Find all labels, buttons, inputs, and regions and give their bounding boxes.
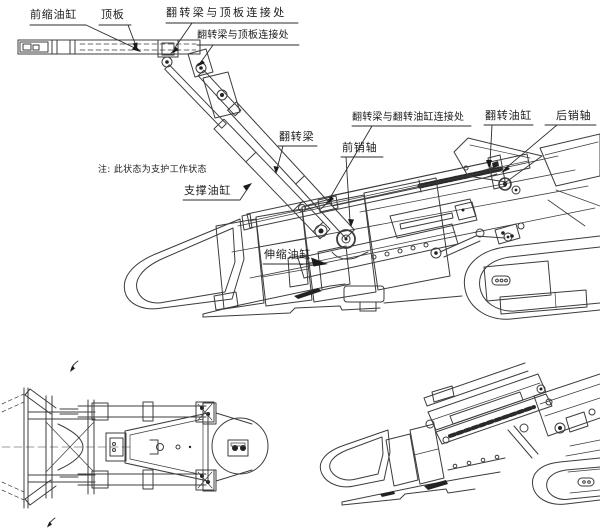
label-flip-beam-top-joint-1: 翻转梁与顶板连接处 [166,7,287,19]
folded-boom [424,363,552,444]
label-rear-pin: 后销轴 [556,110,591,122]
label-front-retract-cylinder: 前缩油缸 [30,9,77,21]
label-state-note: 注: 此状态为支护工作状态 [98,166,207,176]
folded-neck [386,424,444,486]
drawing-linework [0,0,600,528]
label-telescopic-cylinder: 伸缩油缸 [264,249,311,261]
main-view [18,40,600,319]
label-flip-beam-top-joint-2: 翻转梁与顶板连接处 [197,30,289,41]
top-plate-beam [18,40,240,118]
leader-lines [30,23,596,267]
label-front-pin: 前销轴 [342,142,377,154]
plan-turntable [212,418,268,474]
folded-track [532,458,600,504]
label-flip-beam-cylinder-joint: 翻转梁与翻转油缸连接处 [352,112,464,123]
folded-tail-pick [342,455,505,505]
label-top-plate: 顶板 [101,9,125,21]
label-support-cylinder: 支撑油缸 [184,185,231,197]
label-flip-beam: 翻转梁 [279,131,314,143]
crawler-track [464,236,600,319]
support-cylinder-assembly [165,65,330,239]
label-flip-cylinder: 翻转油缸 [485,110,532,122]
plan-view [2,361,268,528]
folded-view [320,363,600,505]
plan-cylinder-bottom [60,470,214,490]
folded-shield [320,430,390,487]
cad-drawing-canvas: 前缩油缸 顶板 翻转梁与顶板连接处 翻转梁与顶板连接处 翻转梁与翻转油缸连接处 … [0,0,600,528]
